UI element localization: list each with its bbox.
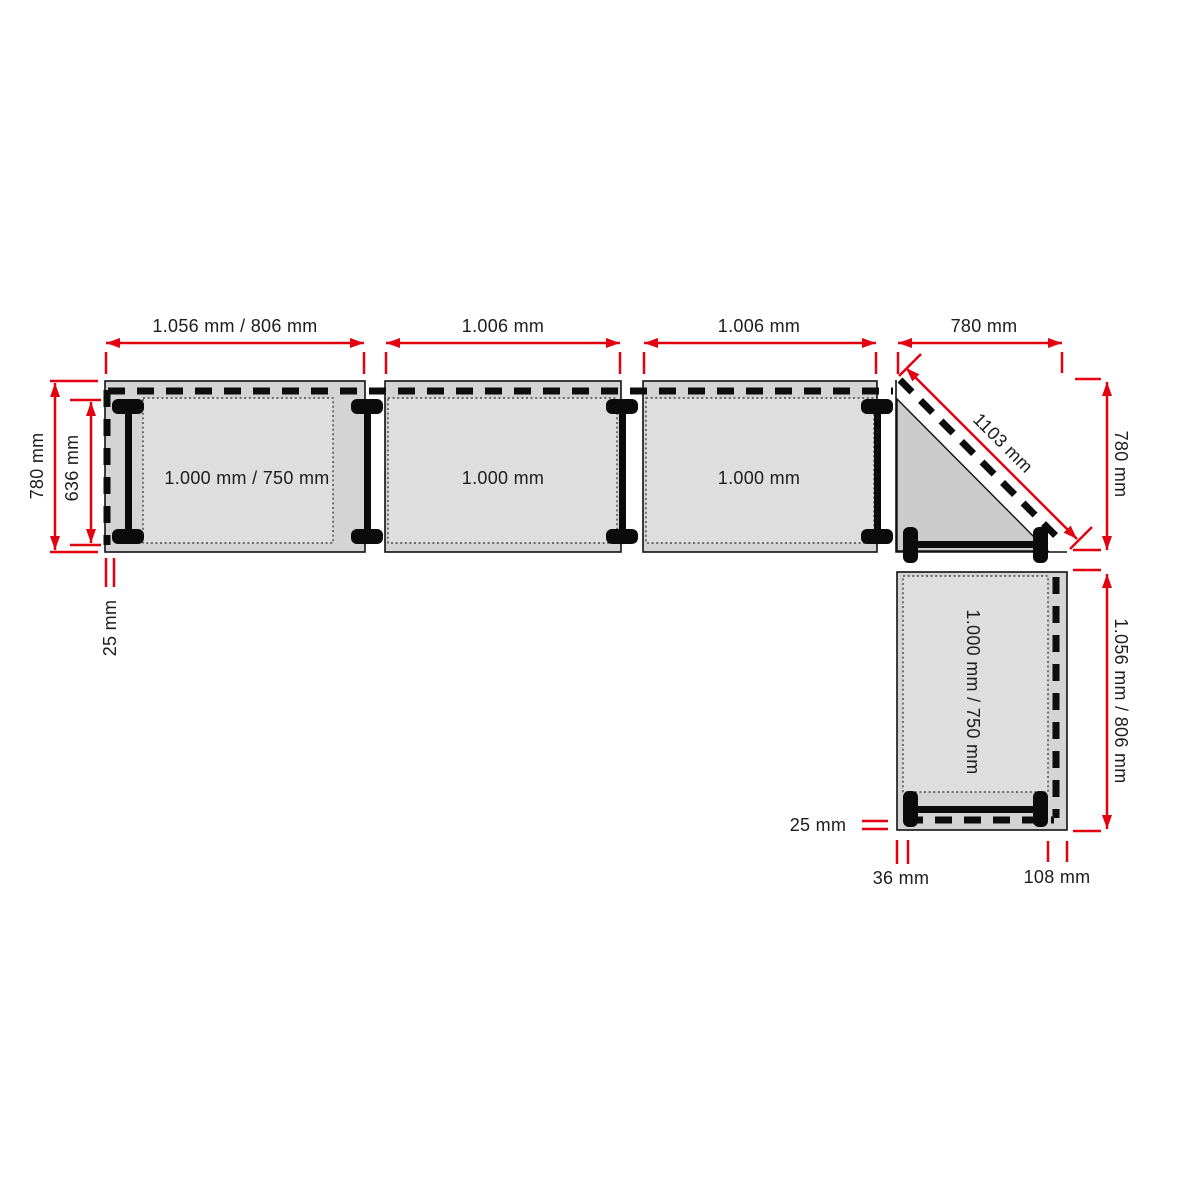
dim-108mm-marks (1048, 841, 1067, 862)
desk-2-surface-label: 1.000 mm (462, 469, 544, 487)
dim-desk1-width-label: 1.056 mm / 806 mm (152, 317, 317, 335)
dim-depth-inner-label: 636 mm (63, 435, 81, 502)
dim-corner-width-label: 780 mm (951, 317, 1018, 335)
desk-4-surface-label: 1.000 mm / 750 mm (964, 609, 982, 774)
dim-108mm-label: 108 mm (1024, 868, 1091, 886)
desk-3-shape (643, 381, 877, 552)
desk-plan-diagram: 1.056 mm / 806 mm 1.006 mm 1.006 mm 780 … (0, 0, 1200, 1200)
dim-corner-depth-extension-lines (1073, 379, 1101, 550)
dim-25mm-left-label: 25 mm (101, 600, 119, 657)
dim-36mm-marks (897, 840, 908, 864)
dim-desk2-width-label: 1.006 mm (462, 317, 544, 335)
dim-25mm-right-label: 25 mm (790, 816, 847, 834)
dim-desk3-width-label: 1.006 mm (718, 317, 800, 335)
desk-2-shape (385, 381, 621, 552)
dim-25mm-right-marks (862, 821, 888, 829)
plan-drawing (0, 0, 1200, 1200)
dim-25mm-left-marks (106, 558, 114, 587)
dim-36mm-label: 36 mm (873, 869, 930, 887)
dim-desk4-extension-lines (1073, 570, 1101, 831)
dim-corner-depth-label: 780 mm (1112, 431, 1130, 498)
dim-depth-outer-label: 780 mm (28, 433, 46, 500)
dim-desk4-height-label: 1.056 mm / 806 mm (1112, 618, 1130, 783)
desk-1-surface-label: 1.000 mm / 750 mm (164, 469, 329, 487)
corner-plate-shape (896, 380, 1067, 552)
desk-3-surface-label: 1.000 mm (718, 469, 800, 487)
